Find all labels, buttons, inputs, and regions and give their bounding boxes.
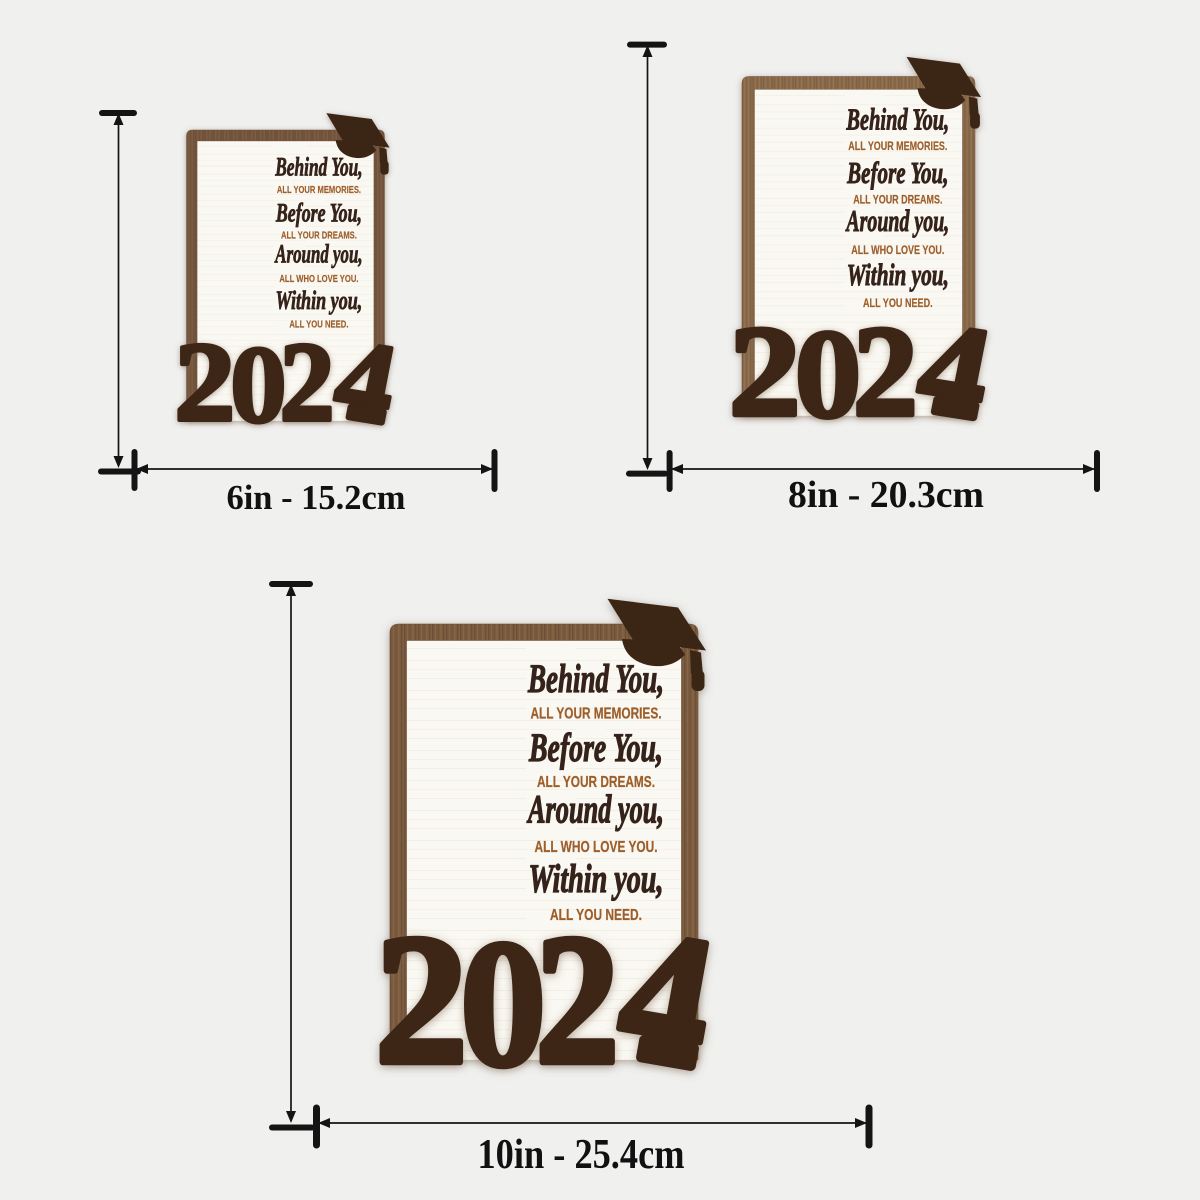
svg-text:6in - 15.2cm: 6in - 15.2cm: [227, 478, 406, 517]
svg-text:8in - 20.3cm: 8in - 20.3cm: [788, 474, 984, 516]
svg-text:10in - 25.4cm: 10in - 25.4cm: [478, 1132, 685, 1178]
